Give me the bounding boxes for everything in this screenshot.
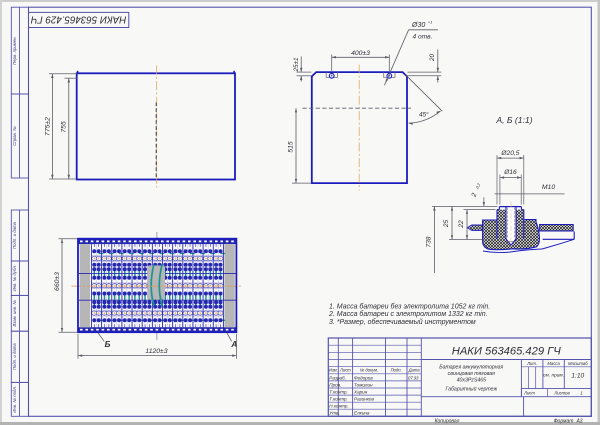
svg-text:Пров.: Пров. [329,382,341,387]
svg-text:755: 755 [61,121,68,133]
svg-text:Лист: Лист [523,391,535,396]
svg-text:М10: М10 [542,184,555,191]
svg-text:Харин: Харин [353,390,368,395]
svg-text:Подп. и дата: Подп. и дата [12,221,17,249]
svg-text:45°: 45° [419,111,429,119]
svg-text:Ø30: Ø30 [411,22,425,29]
svg-text:775±2: 775±2 [44,117,51,136]
svg-text:Справ. №: Справ. № [12,126,17,146]
svg-text:НАКИ 563465.429 ГЧ: НАКИ 563465.429 ГЧ [30,13,126,24]
svg-text:см. прим.: см. прим. [543,374,564,379]
svg-text:40х3PzS465: 40х3PzS465 [457,378,487,384]
svg-text:Т.контр.: Т.контр. [329,397,348,402]
svg-text:Утв.: Утв. [329,411,339,416]
svg-text:Федоров: Федоров [354,375,373,380]
svg-text:Б: Б [105,340,111,349]
svg-text:А: А [230,340,237,349]
svg-text:07.93: 07.93 [408,375,419,380]
svg-text:660±3: 660±3 [54,272,61,291]
svg-text:1120±3: 1120±3 [145,348,167,355]
svg-text:№ докум.: № докум. [360,367,378,372]
svg-text:738: 738 [426,236,433,247]
svg-text:Взам. инв. №: Взам. инв. № [12,300,17,327]
svg-text:Батарея аккумуляторная: Батарея аккумуляторная [439,364,503,370]
svg-text:Елкина: Елкина [354,411,370,416]
svg-text:Копировал: Копировал [435,418,460,424]
svg-text:Подп. и дата: Подп. и дата [12,343,17,371]
svg-text:Дата: Дата [408,367,421,372]
svg-text:Томилин: Томилин [354,382,373,387]
svg-text:Ø16: Ø16 [503,169,517,176]
svg-text:Ø20,5: Ø20,5 [500,150,519,157]
svg-text:22: 22 [458,220,465,229]
svg-text:25±1: 25±1 [293,58,300,73]
svg-text:Перв. примен.: Перв. примен. [12,36,17,65]
svg-text:Инв. № дубл.: Инв. № дубл. [12,265,17,291]
svg-text:20: 20 [429,54,436,63]
svg-text:1:10: 1:10 [571,373,584,380]
svg-text:А, Б (1:1): А, Б (1:1) [495,115,532,125]
svg-text:+1: +1 [428,19,433,24]
svg-text:Масштаб: Масштаб [568,361,588,366]
svg-text:Габаритный чертеж: Габаритный чертеж [445,386,497,393]
svg-text:Формат: Формат [554,418,574,424]
svg-text:25: 25 [443,220,450,229]
svg-text:Разраб.: Разраб. [329,375,346,380]
svg-text:Подп.: Подп. [391,367,402,372]
svg-text:А3: А3 [575,418,582,424]
svg-text:Разинков: Разинков [354,397,374,402]
svg-text:Лист: Лист [339,367,351,372]
svg-text:400±3: 400±3 [351,50,370,57]
svg-text:2. Масса батареи с электролито: 2. Масса батареи с электролитом 1332 кг … [328,310,488,318]
svg-text:Инв. № подл.: Инв. № подл. [12,386,17,413]
svg-text:НАКИ 563465.429 ГЧ: НАКИ 563465.429 ГЧ [452,346,562,358]
svg-text:Изм.: Изм. [329,367,338,372]
svg-text:Т.контр.: Т.контр. [329,390,348,395]
svg-text:Лит.: Лит. [526,361,537,366]
svg-text:Листов: Листов [553,391,570,396]
svg-text:3. *Размер, обеспечиваемый инс: 3. *Размер, обеспечиваемый инструментом [329,318,476,326]
svg-text:Н.контр.: Н.контр. [329,404,348,409]
svg-text:свинцовая тяговая: свинцовая тяговая [448,371,495,377]
svg-text:1. Масса батареи без электроли: 1. Масса батареи без электролита 1052 кг… [329,303,490,311]
svg-text:Масса: Масса [547,361,560,366]
svg-text:1: 1 [580,391,583,396]
svg-text:4 отв.: 4 отв. [413,34,433,41]
svg-text:515: 515 [288,141,295,153]
